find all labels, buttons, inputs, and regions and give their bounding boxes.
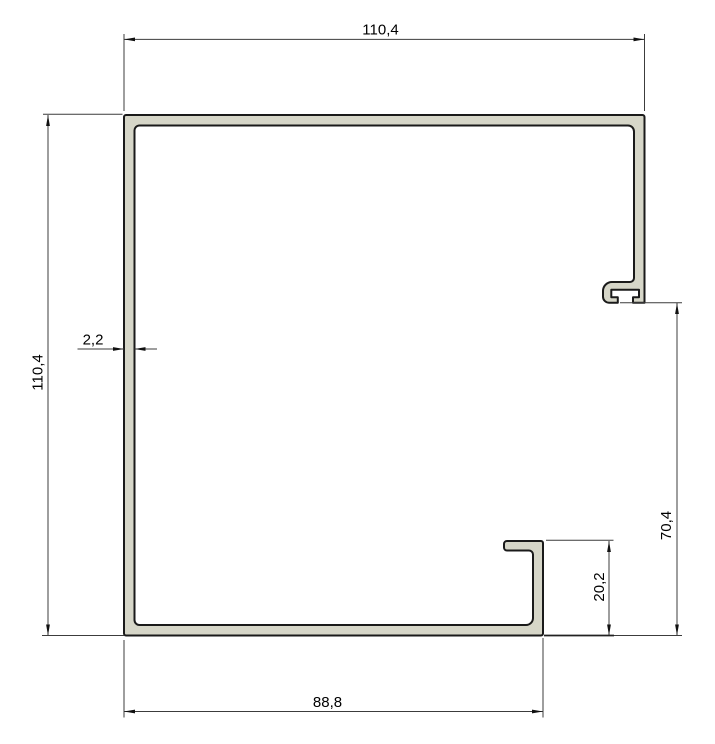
svg-text:110,4: 110,4	[30, 354, 47, 390]
svg-text:88,8: 88,8	[313, 694, 342, 711]
svg-text:110,4: 110,4	[362, 22, 398, 39]
svg-text:20,2: 20,2	[591, 572, 608, 601]
svg-text:70,4: 70,4	[658, 511, 675, 540]
svg-text:2,2: 2,2	[83, 332, 104, 349]
